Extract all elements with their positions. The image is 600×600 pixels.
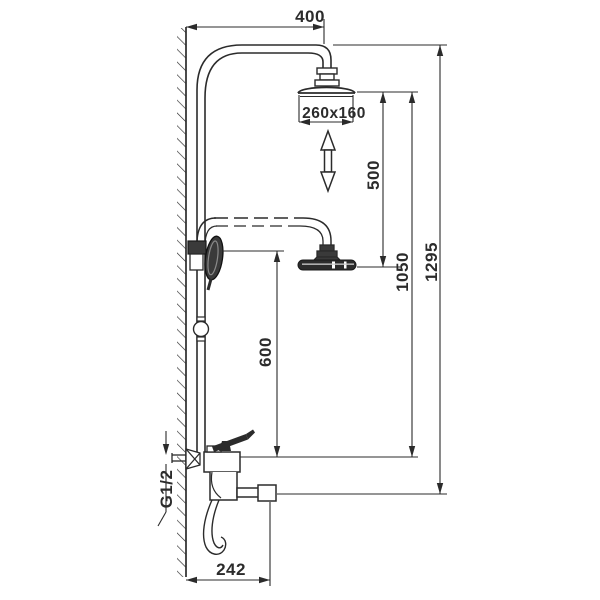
bath-spout [237,485,276,501]
dim-label-head-travel: 500 [364,160,383,190]
arrow-up-icon [274,251,280,262]
hand-shower-bracket [188,241,206,254]
dim-label-inlet-thread: G1/2 [157,470,176,509]
rail-slider-knob [194,317,209,341]
shower-hose [204,500,226,554]
arrow-down-icon [409,446,415,457]
dim-label-total-height: 1295 [422,242,441,282]
mixer-valve-body [204,452,240,472]
hand-shower-holder [190,254,203,270]
arrow-up-icon [437,45,443,56]
upper-head-connector [315,68,339,86]
dim-label-spout-reach: 242 [216,560,246,579]
hand-shower [188,235,225,290]
arrow-left-icon [186,577,197,583]
lower-head-disc [298,260,356,270]
lower-head-connector [313,245,341,261]
mixer-lower-body [210,472,237,500]
wall-hatching [177,28,186,577]
arrow-up-icon [409,92,415,103]
arrow-up-icon [380,92,386,103]
mixer-faucet [172,430,276,555]
mixer-lever [212,430,255,453]
arrow-down-icon [437,483,443,494]
arrow-down-icon [163,444,169,455]
hand-shower-handle [208,279,211,290]
shower-dimension-drawing: 260x160 [0,0,600,600]
dim-label-hand-shower-height: 600 [256,337,275,367]
dim-label-head-to-mixer: 1050 [393,252,412,292]
wall [177,27,186,577]
double-ended-height-adjust-arrow-icon [321,131,335,191]
dim-label-arm-offset: 400 [295,7,325,26]
drawing-svg: 260x160 [0,0,600,600]
arrow-down-icon [274,446,280,457]
arrow-left-icon [186,24,197,30]
dimension-head-size: 260x160 [299,105,366,125]
dim-label-head-size: 260x160 [302,105,366,122]
arrow-down-icon [380,256,386,267]
wall-escutcheon [172,449,200,469]
arrow-right-icon [259,577,270,583]
